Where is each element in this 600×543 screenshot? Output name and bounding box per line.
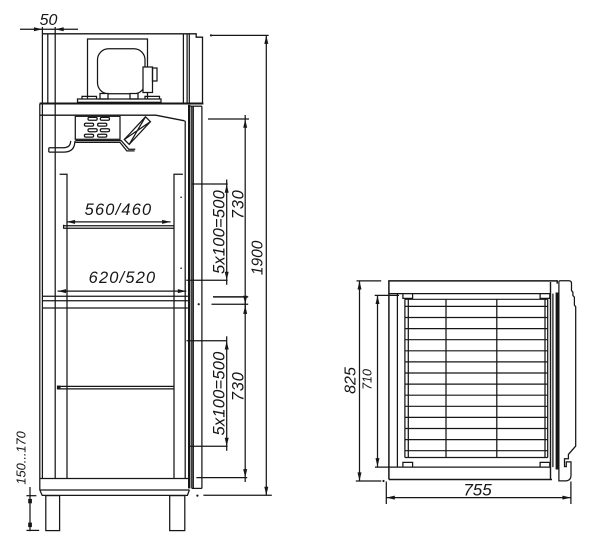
svg-text:755: 755 — [463, 481, 492, 500]
svg-text:5x100=500: 5x100=500 — [211, 351, 229, 436]
svg-text:730: 730 — [230, 371, 248, 401]
svg-text:730: 730 — [230, 189, 248, 219]
svg-text:560/460: 560/460 — [85, 201, 153, 219]
svg-text:620/520: 620/520 — [89, 269, 157, 287]
svg-text:50: 50 — [40, 12, 58, 29]
svg-text:710: 710 — [361, 369, 375, 390]
svg-text:5x100=500: 5x100=500 — [211, 189, 229, 274]
svg-text:150...170: 150...170 — [14, 430, 29, 484]
svg-text:825: 825 — [343, 367, 360, 394]
svg-text:1900: 1900 — [250, 240, 267, 275]
